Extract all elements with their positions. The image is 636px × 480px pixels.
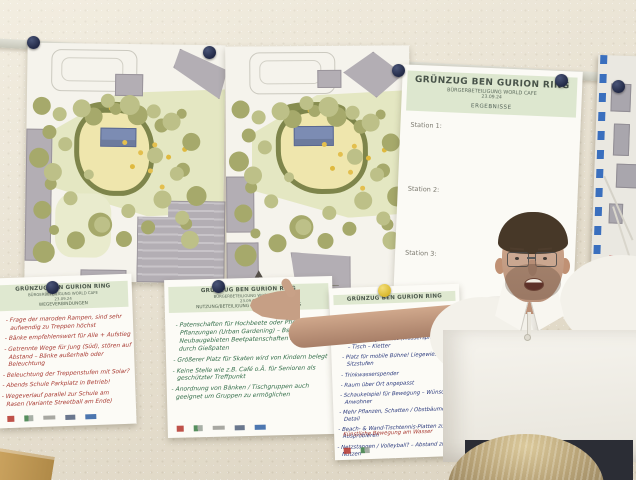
pin-icon [612, 80, 625, 93]
handwritten-note: Raum über Ort angepasst [340, 378, 459, 389]
handwritten-note: Bänke empfehlenswert für Alle + Aufstieg [5, 332, 132, 344]
plan-parking-outline [61, 57, 123, 82]
partner-logo-icon [344, 448, 351, 454]
plan-play-elements [322, 142, 327, 147]
plan-play-elements [122, 140, 127, 145]
handwritten-note: Mehr Pflanzen, Schatten / Obstbäume im D… [339, 406, 459, 424]
flipchart-wegeverbindungen: GRÜNZUG BEN GURION RING BÜRGERBETEILIGUN… [0, 274, 137, 429]
plan-trees [53, 107, 67, 121]
pin-icon [555, 74, 568, 87]
station-label: Station 1: [408, 121, 573, 192]
plan-building [115, 74, 143, 96]
shirt-button [524, 334, 531, 341]
presenter-head [496, 212, 570, 306]
glasses-bridge [527, 257, 535, 259]
map-building [616, 164, 636, 189]
handwritten-note: Größerer Platz für Skaten wird von Kinde… [173, 353, 330, 365]
plan-pavilion [100, 128, 136, 148]
site-plan-left [24, 43, 225, 284]
plan-playground [74, 107, 155, 196]
flipchart-header: GRÜNZUG BEN GURION RING BÜRGERBETEILIGUN… [168, 283, 329, 313]
plan-trees [252, 110, 266, 124]
handwritten-note: Anordnung von Bänken / Tischgruppen auch… [171, 382, 329, 402]
plan-parking-outline [259, 60, 321, 84]
map-building [613, 124, 630, 157]
handwritten-note: Beleuchtung der Treppenstufen mit Solar? [3, 369, 130, 381]
handwritten-note: Frage der maroden Rampen, sind sehr aufw… [5, 314, 133, 334]
handwritten-note: Wegeverlauf parallel zur Schule am Rasen… [1, 390, 129, 410]
open-mouth [524, 278, 544, 291]
partner-logo-icon [361, 447, 370, 453]
handwritten-note: Schaukelspiel für Bewegung – Wünsche – A… [340, 389, 460, 407]
site-plan-right [225, 45, 411, 292]
partner-logo-icon [255, 424, 266, 429]
pin-icon [392, 64, 405, 77]
notes-list: Frage der maroden Rampen, sind sehr aufw… [1, 314, 133, 413]
plan-pavilion [294, 126, 334, 146]
plan-building [226, 176, 254, 232]
pin-icon-yellow [378, 284, 391, 297]
photo-scene: GRÜNZUG BEN GURION RING BÜRGERBETEILIGUN… [0, 0, 636, 480]
handwritten-note: Abends Schule Parkplatz in Betrieb! [2, 379, 129, 391]
flipchart-header: GRÜNZUG BEN GURION RING [333, 291, 455, 305]
partner-logo-icon [194, 425, 203, 431]
flipchart-title: GRÜNZUG BEN GURION RING [333, 293, 455, 303]
hair [498, 212, 568, 254]
flipchart-header: GRÜNZUG BEN GURION RING BÜRGERBETEILIGUN… [0, 281, 128, 312]
partner-logo-icon [43, 415, 55, 419]
logo-strip [7, 411, 128, 423]
pin-icon [27, 36, 40, 49]
partner-logo-icon [65, 414, 75, 419]
partner-logo-icon [7, 416, 14, 422]
plan-trees [232, 100, 250, 118]
north-arrow-icon [255, 270, 263, 277]
partner-logo-icon [235, 425, 245, 430]
partner-logo-icon [177, 426, 184, 432]
plan-building [317, 70, 341, 88]
plan-trees [33, 97, 51, 115]
handwritten-note: Keine Stelle wie z.B. Café o.Ä. für Seni… [172, 364, 330, 384]
pin-icon [203, 46, 216, 59]
results-header: GRÜNZUG BEN GURION RING BÜRGERBETEILIGUN… [406, 71, 578, 118]
plan-building [25, 129, 53, 261]
pin-icon [46, 281, 59, 294]
flipchart-nutzung: GRÜNZUG BEN GURION RING BÜRGERBETEILIGUN… [164, 276, 336, 438]
partner-logo-icon [213, 426, 225, 430]
handwritten-note: Getrennte Wege für Jung (Süd), stören au… [3, 343, 131, 370]
partner-logo-icon [85, 413, 96, 418]
plan-playground [276, 108, 369, 195]
plan-lawn [55, 193, 112, 258]
partner-logo-icon [24, 415, 33, 421]
logo-strip [177, 421, 328, 433]
pin-icon [212, 280, 225, 293]
